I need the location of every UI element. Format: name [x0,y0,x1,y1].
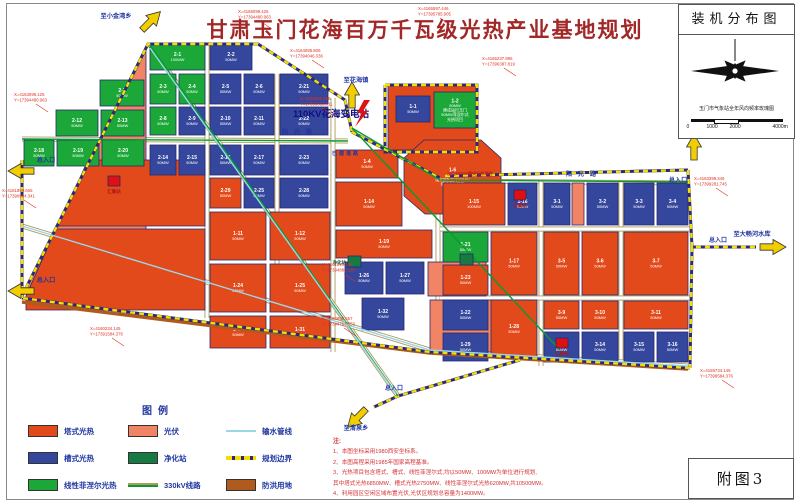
scale-label-1: 1000 [707,124,718,130]
legend-label: 330kV线路 [164,480,201,491]
legend-title: 图例 [28,402,288,417]
notes-lines: 1、本图坐标采用1980西安坐标系。2、本图高程采用1985年国家高程基准。3、… [333,447,533,500]
note-line: 1、本图坐标采用1980西安坐标系。 [333,447,533,458]
legend-item-water: 输水管线 [226,425,330,437]
note-line: 4、利用园区空闲区域布置光伏,光伏区规划总容量为1400MW。 [333,489,533,500]
legend-swatch-kvline [128,483,158,487]
figure-number: 附图3 [717,468,766,489]
legend-swatch-boundary [226,456,256,460]
figure-number-box: 附图3 [688,458,794,499]
notes-heading: 注: [333,436,533,445]
legend-item-flood: 防洪用地 [226,479,330,491]
wind-rose-diagram [679,35,792,99]
legend-item-fresnel: 线性菲涅尔光热 [28,479,128,491]
legend-items: 塔式光热光伏输水管线槽式光热净化站规划边界线性菲涅尔光热330kV线路防洪用地 [28,425,328,491]
legend-item-tower: 塔式光热 [28,425,128,437]
legend-swatch-water [226,430,256,432]
scale-label-2: 2000 [730,124,741,130]
page-title: 甘肃玉门花海百万千瓦级光热产业基地规划 [175,14,675,44]
legend-label: 塔式光热 [64,426,94,437]
scale-label-3: 4000m [773,124,788,130]
legend-label: 槽式光热 [64,453,94,464]
notes: 注: 1、本图坐标采用1980西安坐标系。2、本图高程采用1985年国家高程基准… [333,436,533,500]
inset-panel: 装机分布图 玉门市气象站全年风向频率玫瑰图 0 1000 2000 4000m [678,4,795,139]
legend-item-boundary: 规划边界 [226,452,330,464]
inset-title: 装机分布图 [679,5,794,35]
legend-swatch-tower [28,425,58,437]
legend-label: 净化站 [164,453,187,464]
legend-item-trough: 槽式光热 [28,452,128,464]
note-line: 3、光热项目包含塔式、槽式、线性菲涅尔式,均以50MW、100MW为单位进行规划… [333,468,533,479]
legend-label: 规划边界 [262,453,292,464]
legend-swatch-fresnel [28,479,58,491]
legend-label: 防洪用地 [262,480,292,491]
legend-label: 光伏 [164,426,179,437]
legend-label: 输水管线 [262,426,292,437]
legend-swatch-trough [28,452,58,464]
planning-map-page: 2-1100MW2-250MW2-350MW2-450MW2-550MW2-65… [0,0,800,504]
note-line: 2、本图高程采用1985年国家高程基准。 [333,458,533,469]
scale-label-0: 0 [687,124,690,130]
scale-bar: 0 1000 2000 4000m [691,119,783,133]
legend-item-pv: 光伏 [128,425,226,437]
note-line: 其中塔式光热6850MW、槽式光热2750MW、线性菲涅尔式光热620MW,共1… [333,479,533,490]
legend-swatch-flood [226,479,256,491]
legend-swatch-purif [128,452,158,464]
legend-item-purif: 净化站 [128,452,226,464]
wind-rose-caption: 玉门市气象站全年风向频率玫瑰图 [679,105,794,112]
legend: 图例 塔式光热光伏输水管线槽式光热净化站规划边界线性菲涅尔光热330kV线路防洪… [28,402,328,491]
legend-swatch-pv [128,425,158,437]
legend-label: 线性菲涅尔光热 [64,480,117,491]
legend-item-kvline: 330kV线路 [128,479,226,491]
wind-rose-center [732,68,738,74]
